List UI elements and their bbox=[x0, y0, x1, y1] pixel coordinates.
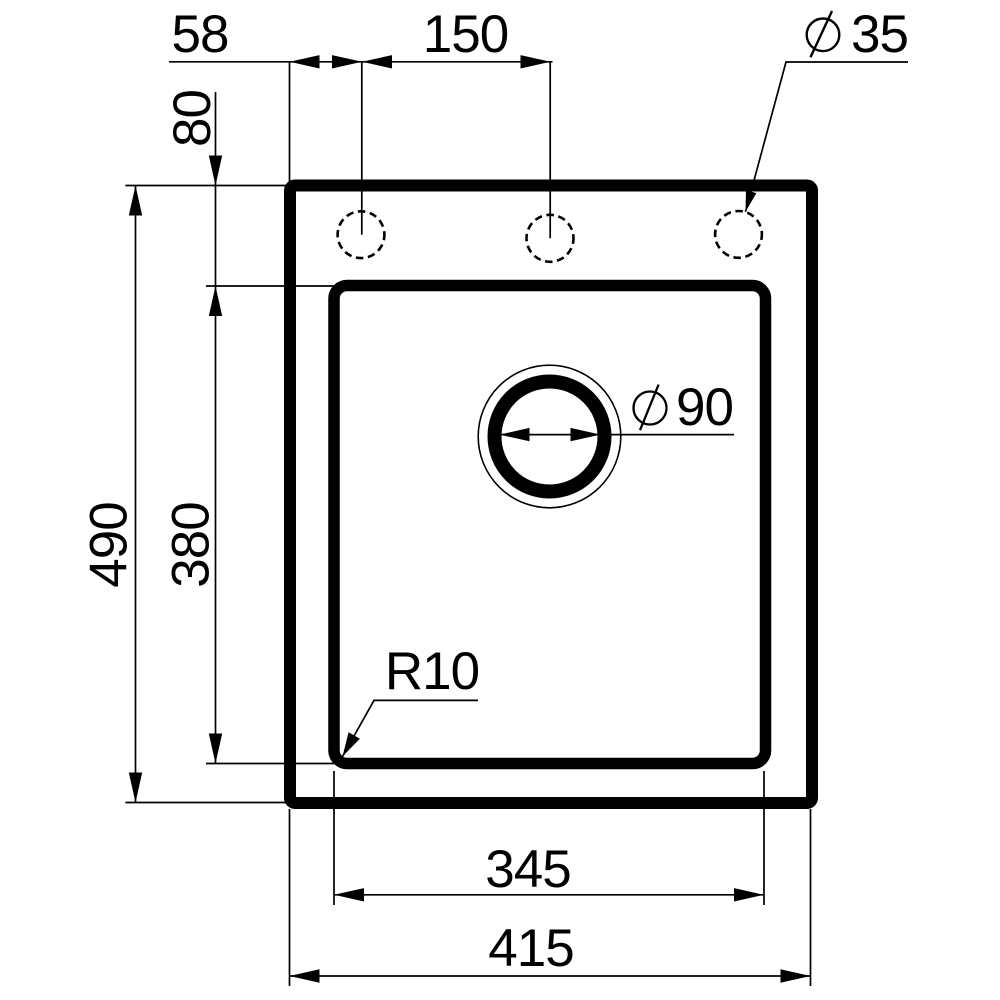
svg-text:490: 490 bbox=[80, 502, 139, 587]
svg-text:380: 380 bbox=[162, 502, 221, 587]
svg-text:150: 150 bbox=[423, 5, 508, 64]
svg-text:58: 58 bbox=[172, 5, 229, 64]
svg-text:415: 415 bbox=[488, 919, 573, 978]
svg-text:R10: R10 bbox=[385, 642, 479, 701]
svg-text:345: 345 bbox=[485, 840, 570, 899]
svg-text:35: 35 bbox=[851, 5, 908, 64]
svg-text:90: 90 bbox=[676, 378, 733, 437]
svg-text:80: 80 bbox=[163, 90, 222, 147]
